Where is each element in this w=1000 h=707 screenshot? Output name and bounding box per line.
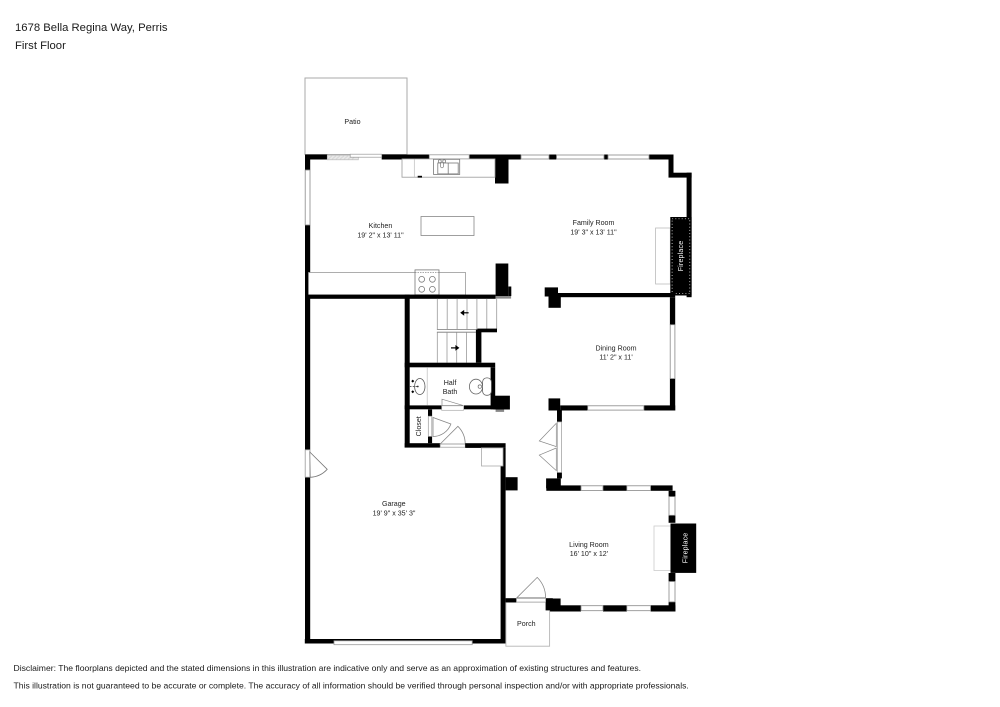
- svg-text:19' 9" x 35' 3": 19' 9" x 35' 3": [373, 509, 416, 517]
- svg-text:Family Room: Family Room: [573, 219, 615, 227]
- svg-text:Half: Half: [444, 379, 457, 387]
- svg-text:Garage: Garage: [382, 500, 406, 508]
- svg-text:19' 2" x 13' 11": 19' 2" x 13' 11": [357, 231, 404, 239]
- svg-text:Patio: Patio: [344, 118, 360, 126]
- svg-text:First Floor: First Floor: [15, 40, 66, 52]
- svg-text:Fireplace: Fireplace: [678, 241, 685, 272]
- svg-text:Fireplace: Fireplace: [683, 533, 690, 564]
- svg-text:11' 2" x 11': 11' 2" x 11': [599, 353, 632, 361]
- svg-text:Disclaimer: The floorplans dep: Disclaimer: The floorplans depicted and …: [14, 663, 642, 673]
- svg-text:Closet: Closet: [415, 416, 423, 436]
- svg-text:Bath: Bath: [443, 388, 458, 396]
- svg-text:19' 3" x 13' 11": 19' 3" x 13' 11": [570, 228, 617, 236]
- svg-text:Dining Room: Dining Room: [595, 344, 636, 352]
- svg-text:1678 Bella Regina Way, Perris: 1678 Bella Regina Way, Perris: [15, 22, 168, 34]
- svg-text:Kitchen: Kitchen: [369, 222, 393, 230]
- svg-text:Living Room: Living Room: [569, 541, 609, 549]
- svg-text:This illustration is not guara: This illustration is not guaranteed to b…: [14, 681, 689, 691]
- svg-text:16' 10" x 12': 16' 10" x 12': [570, 550, 608, 558]
- svg-text:Porch: Porch: [517, 620, 536, 628]
